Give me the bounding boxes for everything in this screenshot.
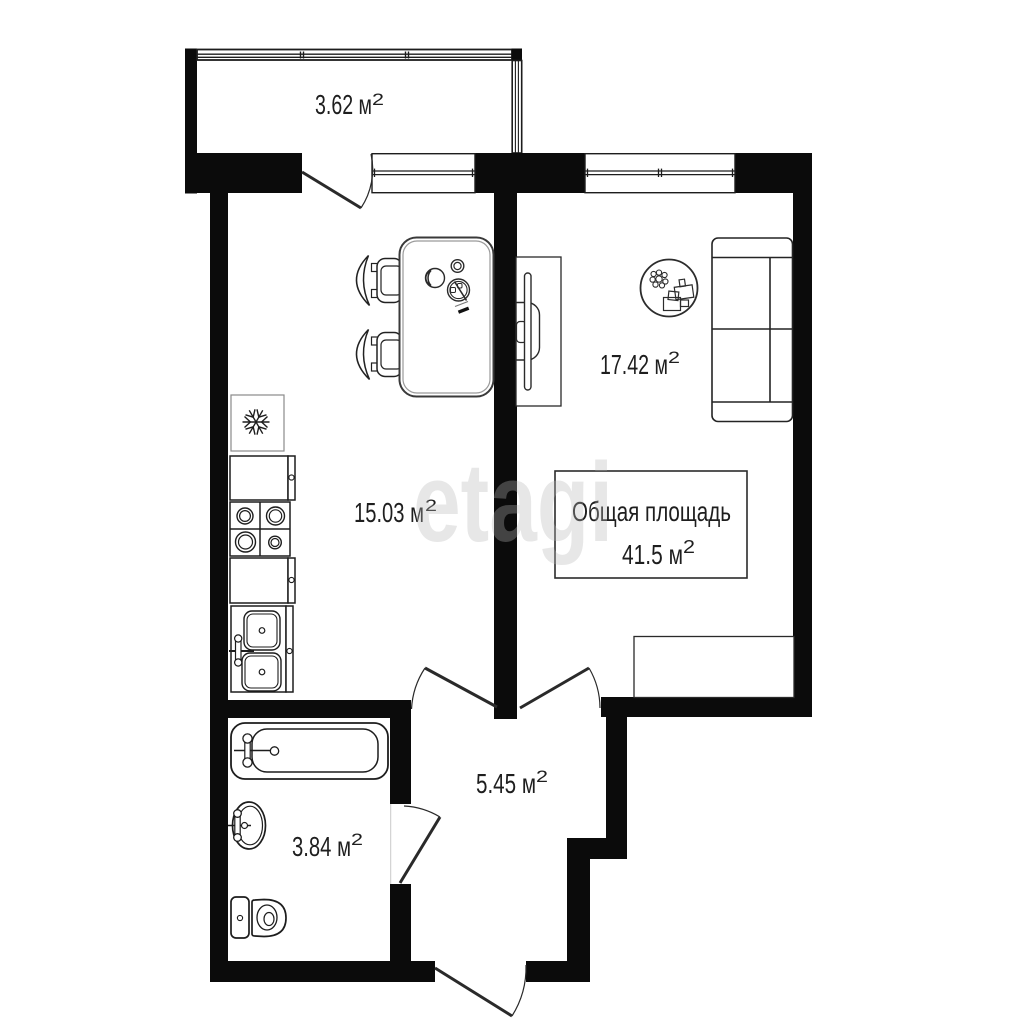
svg-text:etagi: etagi: [413, 440, 613, 565]
svg-text:2: 2: [372, 90, 384, 109]
svg-text:2: 2: [351, 830, 363, 849]
svg-text:5.45 м: 5.45 м: [476, 768, 536, 799]
svg-text:2: 2: [536, 767, 548, 786]
svg-text:3.62 м: 3.62 м: [315, 89, 372, 120]
svg-text:2: 2: [683, 537, 695, 557]
svg-text:41.5 м: 41.5 м: [622, 539, 683, 570]
svg-text:3.84 м: 3.84 м: [292, 831, 351, 862]
svg-text:17.42 м: 17.42 м: [600, 349, 668, 380]
svg-text:2: 2: [668, 348, 680, 367]
